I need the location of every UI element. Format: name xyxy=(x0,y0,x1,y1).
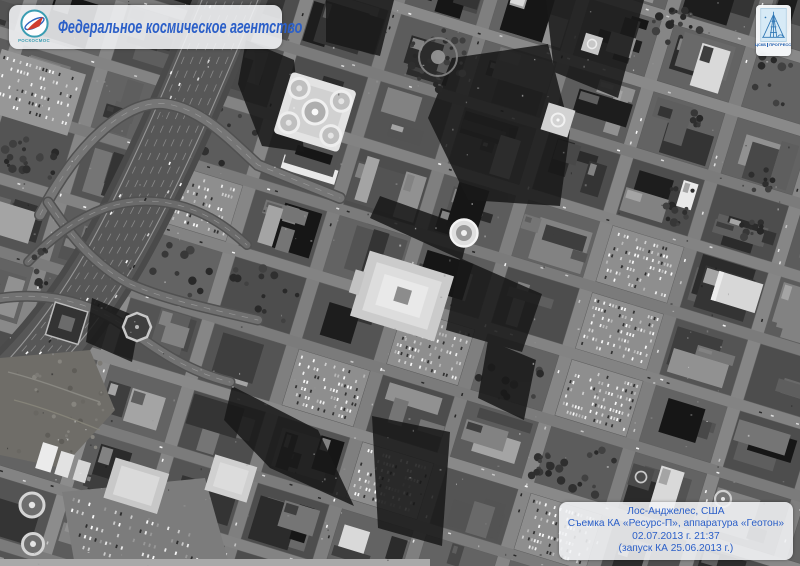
launch-gantry-icon xyxy=(760,8,787,42)
tsskb-progress-logo: ЦСКБ ПРОГРЕСС xyxy=(756,5,791,56)
agency-name: Федеральное космическое агентство xyxy=(58,17,208,38)
caption-location: Лос-Анджелес, США xyxy=(568,506,784,518)
builder-name-right: ПРОГРЕСС xyxy=(770,43,792,47)
roscosmos-logo-icon xyxy=(18,9,51,39)
builder-name-left: ЦСКБ xyxy=(755,43,766,47)
agency-name-wrap: Федеральное космическое агентство xyxy=(58,17,272,38)
satellite-photo-los-angeles xyxy=(0,0,800,566)
roscosmos-logo: РОСКОСМОС xyxy=(14,9,54,45)
caption-source: Съемка КА «Ресурс-П», аппаратура «Геотон… xyxy=(568,518,784,530)
roscosmos-banner: РОСКОСМОС Федеральное космическое агентс… xyxy=(9,5,282,49)
caption-launch: (запуск КА 25.06.2013 г.) xyxy=(568,543,784,555)
tsskb-progress-name: ЦСКБ ПРОГРЕСС xyxy=(755,43,791,47)
caption-datetime: 02.07.2013 г. 21:37 xyxy=(568,531,784,543)
press-release-image: РОСКОСМОС Федеральное космическое агентс… xyxy=(0,0,800,566)
roscosmos-logo-caption: РОСКОСМОС xyxy=(18,39,50,42)
photo-caption: Лос-Анджелес, США Съемка КА «Ресурс-П», … xyxy=(559,502,793,560)
